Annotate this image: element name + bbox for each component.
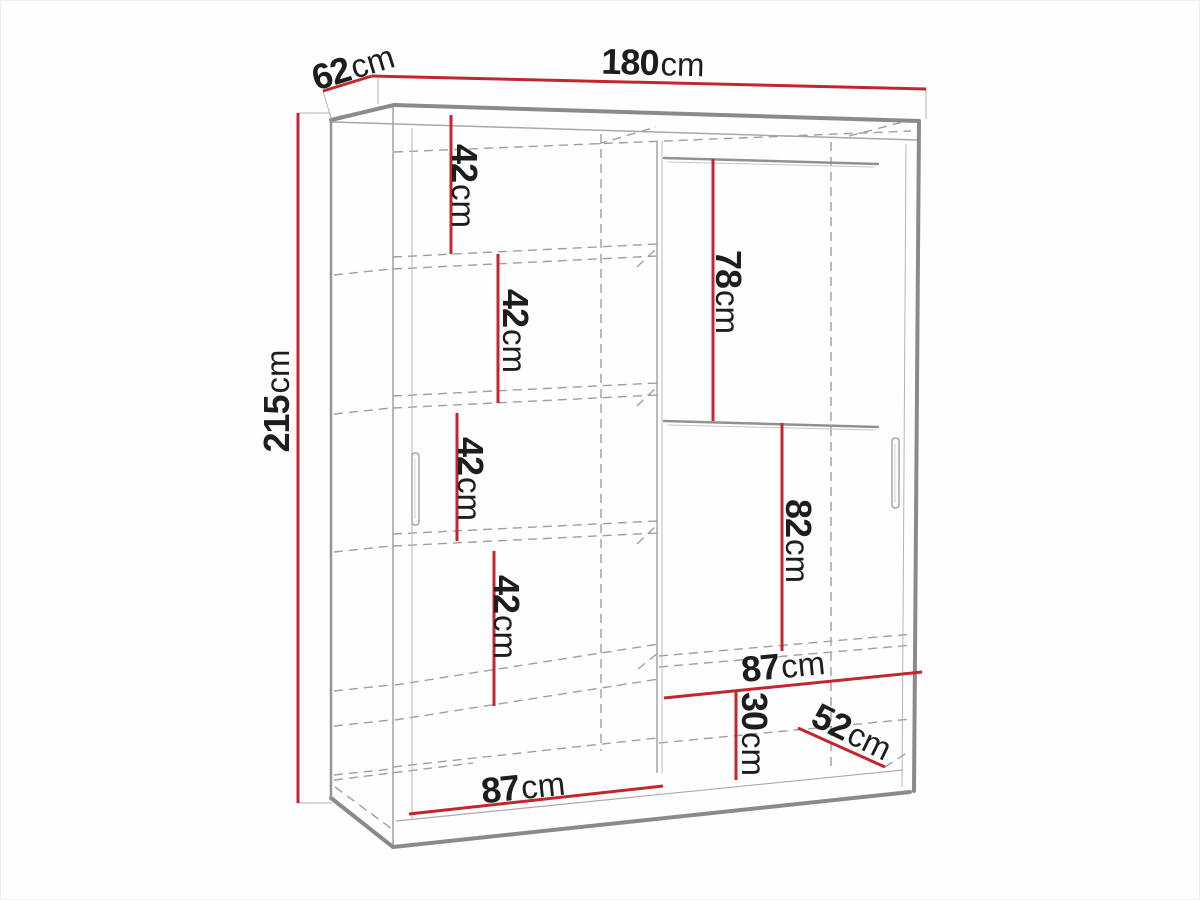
extension-ticks [298, 78, 926, 803]
dim-label-rod-gap-lower: 82cm [780, 499, 816, 583]
dim-label-rod-gap-upper: 78cm [710, 250, 746, 334]
dim-label-bottom-gap: 30cm [736, 692, 772, 776]
left-door-handle [412, 453, 419, 525]
hanging-rods [664, 158, 878, 430]
dim-label-shelf-gap-3: 42cm [452, 437, 488, 521]
dim-label-left-width: 87cm [479, 765, 566, 810]
dim-label-shelf-gap-4: 42cm [488, 575, 524, 659]
dim-label-height: 215cm [259, 349, 295, 452]
dim-label-shelf-gap-1: 42cm [446, 144, 482, 228]
dim-label-width: 180cm [601, 44, 705, 83]
right-door-handle [892, 438, 899, 508]
dim-label-right-width: 87cm [739, 644, 826, 688]
wardrobe-dimension-diagram: 62cm 180cm 215cm 42cm 42cm 42cm 42cm 78c… [0, 0, 1200, 900]
wardrobe-line-art [1, 1, 1200, 900]
dim-label-shelf-gap-2: 42cm [497, 289, 533, 373]
